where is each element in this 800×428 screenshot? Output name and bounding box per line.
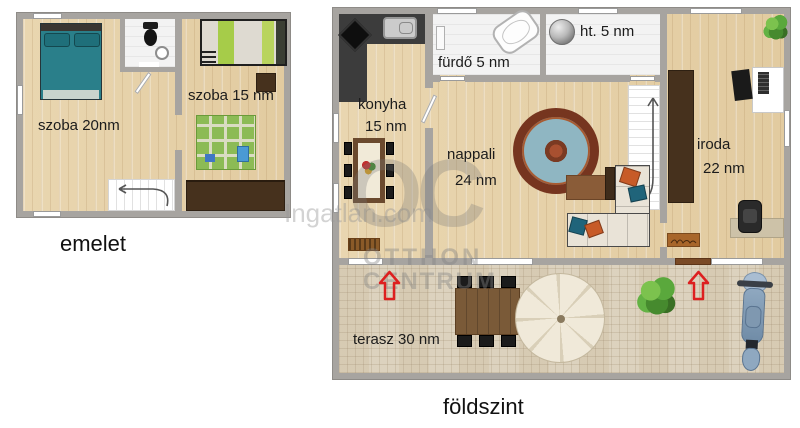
wall-divider-upper-bottom bbox=[175, 150, 182, 211]
water-heater-icon bbox=[549, 19, 575, 45]
kitchen-sink-icon bbox=[383, 17, 417, 39]
wall-divider-upper-top bbox=[175, 19, 182, 115]
terrace-wall-a bbox=[339, 258, 348, 265]
motorcycle-rear bbox=[741, 347, 760, 371]
chair-icon bbox=[344, 164, 352, 177]
play-mat-detail bbox=[205, 154, 215, 162]
play-mat-pool bbox=[237, 146, 249, 162]
pillow-icon bbox=[44, 33, 70, 47]
window-ht-top bbox=[578, 8, 618, 14]
terrace-chair-icon bbox=[501, 335, 516, 347]
entrance-arrow-icon bbox=[687, 270, 710, 307]
window-upper-left bbox=[17, 85, 23, 115]
wall-kitchen-bottom bbox=[425, 128, 433, 258]
terrace-plant-icon bbox=[636, 276, 678, 318]
window-upper-bottom bbox=[33, 211, 61, 217]
room-label-konyha: konyha bbox=[358, 96, 406, 113]
ground-floor-caption: földszint bbox=[443, 394, 524, 420]
chair-icon bbox=[386, 164, 394, 177]
terrace-wall-c bbox=[533, 258, 675, 265]
office-terrace-door bbox=[711, 258, 763, 265]
chair-icon bbox=[386, 142, 394, 155]
office-terrace-door-leaf bbox=[675, 258, 711, 265]
pillow-icon bbox=[74, 33, 100, 47]
tv-stand-icon bbox=[605, 167, 615, 200]
terrace-wall-b bbox=[383, 258, 471, 265]
room-label-nappali-area: 24 nm bbox=[455, 172, 497, 189]
chair-icon bbox=[386, 186, 394, 199]
play-mat-icon bbox=[196, 115, 256, 170]
chair-icon bbox=[344, 186, 352, 199]
bed-ladder-icon bbox=[202, 49, 216, 63]
toilet-icon bbox=[143, 22, 158, 29]
bed-side-rail bbox=[276, 21, 285, 64]
motorcycle-seat bbox=[745, 306, 762, 329]
floorplan-canvas: szoba 20nm szoba 15 nm emelet bbox=[0, 0, 800, 428]
sink-icon bbox=[155, 46, 169, 60]
entrance-arrow-icon bbox=[378, 270, 401, 307]
terrace-chair-icon bbox=[501, 276, 516, 288]
single-bed-icon bbox=[200, 19, 287, 66]
window-upper-top bbox=[33, 13, 62, 19]
staircase-upper bbox=[108, 179, 175, 211]
welcome-script-icon bbox=[668, 235, 699, 247]
table-flowers-icon bbox=[362, 161, 376, 175]
chair-icon bbox=[344, 142, 352, 155]
office-wardrobe-icon bbox=[668, 70, 694, 203]
office-chair-seat bbox=[743, 209, 757, 223]
room-label-iroda-area: 22 nm bbox=[703, 160, 745, 177]
lime-pillow bbox=[262, 21, 274, 64]
motorcycle-handlebar bbox=[737, 280, 773, 288]
upper-bathroom bbox=[120, 19, 175, 72]
sink-basin bbox=[399, 22, 413, 34]
room-label-szoba20: szoba 20nm bbox=[38, 117, 120, 134]
window-furdo-top bbox=[437, 8, 477, 14]
motorcycle-icon bbox=[732, 271, 773, 373]
office-plant-icon bbox=[763, 14, 789, 42]
wall-nappali-top-a bbox=[433, 75, 440, 82]
stairs-direction-arrow-icon bbox=[109, 180, 176, 212]
wall-iroda-top bbox=[660, 14, 667, 223]
wardrobe-icon bbox=[186, 180, 285, 211]
window-iroda-top bbox=[690, 8, 742, 14]
parasol-icon bbox=[515, 273, 605, 363]
parasol-pole bbox=[557, 315, 565, 323]
room-label-ht: ht. 5 nm bbox=[580, 23, 634, 40]
window-kitchen-left-2 bbox=[333, 183, 339, 213]
kitchen-doormat-icon bbox=[348, 238, 380, 251]
wall-kitchen-top bbox=[425, 14, 433, 88]
office-chair-icon bbox=[738, 200, 762, 233]
kitchen-terrace-door bbox=[348, 258, 383, 265]
room-label-furdo: fürdő 5 nm bbox=[438, 54, 510, 71]
bed-sheet-fold bbox=[43, 90, 99, 99]
room-label-konyha-area: 15 nm bbox=[365, 118, 407, 135]
ground-floor-plan: konyha 15 nm fürdő 5 nm ht. 5 nm nappali… bbox=[333, 8, 790, 379]
rug-medallion bbox=[543, 138, 569, 164]
room-label-terasz: terasz 30 nm bbox=[353, 331, 440, 348]
terrace-chair-icon bbox=[457, 335, 472, 347]
window-iroda-right bbox=[784, 110, 790, 147]
wall-furdo-ht bbox=[540, 14, 546, 75]
computer-monitor-icon bbox=[731, 69, 753, 101]
coffee-table-icon bbox=[566, 175, 607, 200]
bathroom-door-gap bbox=[139, 62, 159, 67]
window-kitchen-left-1 bbox=[333, 113, 339, 143]
toilet-bowl-icon bbox=[144, 29, 157, 46]
kitchen-table-icon bbox=[353, 138, 385, 203]
upper-floor-caption: emelet bbox=[60, 231, 126, 257]
wall-iroda-bottom bbox=[660, 247, 667, 258]
wall-nappali-top-b bbox=[465, 75, 630, 82]
terrace-chair-icon bbox=[479, 335, 494, 347]
ht-door-gap bbox=[630, 76, 655, 81]
bed-headboard bbox=[41, 24, 101, 31]
lime-blanket bbox=[218, 21, 234, 64]
kitchen-door-leaf bbox=[421, 95, 437, 124]
upper-floor-plan: szoba 20nm szoba 15 nm bbox=[17, 13, 290, 217]
room-label-iroda: iroda bbox=[697, 136, 730, 153]
terrace-chair-icon bbox=[479, 276, 494, 288]
terrace-wall-d bbox=[763, 258, 784, 265]
laptop-icon bbox=[758, 72, 769, 94]
shower-door-icon bbox=[436, 26, 445, 50]
room-label-nappali: nappali bbox=[447, 146, 495, 163]
bathroom-door-leaf bbox=[134, 72, 151, 94]
furdo-door-gap bbox=[440, 76, 465, 81]
living-terrace-door bbox=[471, 258, 533, 265]
welcome-mat-icon bbox=[667, 233, 700, 247]
terrace-chair-icon bbox=[457, 276, 472, 288]
double-bed-icon bbox=[40, 23, 102, 100]
terrace-table-icon bbox=[455, 288, 520, 335]
room-label-szoba15: szoba 15 nm bbox=[188, 87, 274, 104]
